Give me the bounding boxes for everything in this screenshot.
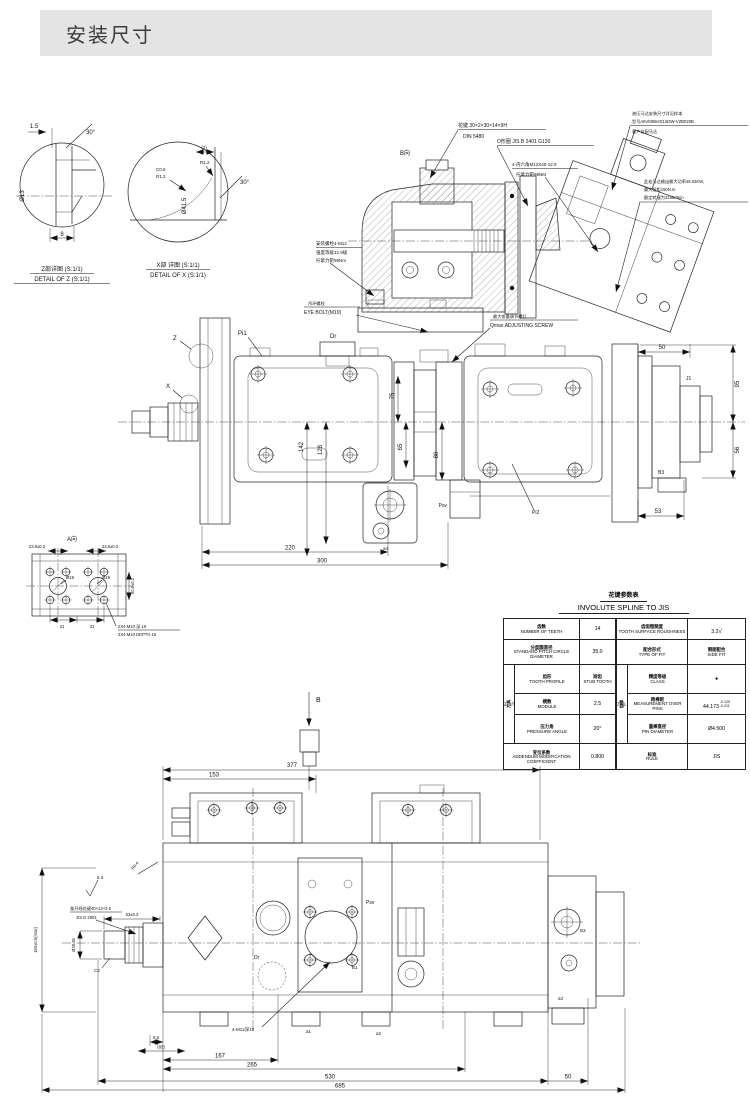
detail-x-title-cn: X部 详图 (S:1/1) — [156, 261, 199, 269]
table-group-cutter: 刀具 CUTTER — [504, 665, 515, 744]
dim-128: 128 — [318, 444, 324, 455]
dim-31-right: 31 — [90, 624, 95, 629]
dim-80: 80 — [434, 451, 440, 458]
motor-note-line2: 型号A6VM55HD1/63W-VZB020B — [632, 118, 694, 125]
qmax-note-en: Qmax.ADJUSTING SCREW — [490, 323, 553, 329]
technical-drawing-canvas: 1.5 30° 8 Ø13 Z部详图 (S:1/1) DETAIL OF Z (… — [0, 0, 750, 1118]
detail-z-dim-depth: 8 — [60, 232, 64, 238]
table-cell-name: 模数MODULE — [515, 694, 580, 715]
bottom-spline-note-line2: JIS D 2001 — [76, 915, 97, 920]
dim-153: 153 — [209, 773, 220, 779]
table-cell-name: 齿形TOOTH PROFILE — [515, 665, 580, 694]
port-b3-label: B3 — [658, 470, 664, 476]
bottom-port-dr-label: Dr — [254, 955, 260, 961]
dim-31-left: 31 — [60, 624, 65, 629]
dim-53: 53 — [655, 509, 662, 515]
bottom-port-a2-label: a2 — [376, 1031, 382, 1036]
spline-table-title: 花键参数表 INVOLUTE SPLINE TO JIS — [503, 583, 744, 614]
dim-265: 265 — [247, 1063, 258, 1069]
table-cell-name: 齿面粗糙度TOOTH SURFACE ROUGHNESS — [617, 619, 688, 640]
table-cell-value: JIS — [688, 744, 746, 770]
table-cell-name: 精度等级CLASS — [628, 665, 688, 694]
bottom-port-a1-label: a1 — [306, 1029, 312, 1034]
fillet-note: R0.4 — [130, 860, 140, 871]
detail-x-dim-r-top: R1.2 — [200, 160, 210, 165]
chamfer-note: C2 — [94, 968, 100, 973]
dim-142: 142 — [299, 441, 305, 452]
dim-8-5: 8.5 — [153, 1035, 159, 1040]
table-cell-value: 44.173-0.125-0.211 — [688, 694, 746, 715]
detail-z-title-en: DETAIL OF Z (S:1/1) — [34, 277, 89, 283]
dim-pitch-left: 23.8±0.2 — [29, 544, 46, 549]
dim-pitch-right: 23.8±0.2 — [102, 544, 119, 549]
table-cell-name: 齿数NUMBER OF TEETH — [504, 619, 580, 640]
table-cell-name: 配合形式TYPE OF FIT — [617, 640, 688, 665]
dim-vertical: 50.8±0.2 — [130, 577, 135, 594]
mount-bolt-note-line1: 安装螺栓4-M12 — [316, 240, 347, 247]
dim-220: 220 — [285, 546, 296, 552]
spline-table: 花键参数表 INVOLUTE SPLINE TO JIS 齿数NUMBER OF… — [503, 583, 744, 770]
bottom-port-psv-label: Psv — [366, 900, 375, 906]
mount-bolt-note-line2: 强度等级12.9级 — [316, 249, 348, 256]
view-a-label: A向 — [67, 535, 77, 543]
detail-x-dim-angle: 30° — [240, 180, 250, 186]
dim-300: 300 — [317, 559, 328, 565]
thread-note-cn: 2X4-M10 深 16 — [118, 623, 147, 630]
dim-167: 167 — [215, 1054, 226, 1060]
detail-x-dim-groove: (2) — [201, 145, 207, 150]
dim-shaft-diameter: Ø39.36 — [71, 937, 76, 951]
bottom-bolt-note: 4-M12深18 — [232, 1026, 255, 1033]
eye-bolt-note-en: EYE BOLT(M10) — [304, 310, 341, 316]
detail-z-dim-bore: Ø13 — [20, 190, 26, 202]
table-cell-value: 2.5 — [580, 694, 616, 715]
socket-bolt-note-line2: 拧紧力矩98NM — [516, 171, 546, 178]
table-group-tooth-thickness: 齿厚 TOOTH THICKNESS — [617, 665, 628, 744]
qmax-note-cn: 最大排量调节螺钉 — [493, 313, 527, 320]
table-cell-name: 压力角PRESSURE ANGLE — [515, 715, 580, 744]
dim-685: 685 — [335, 1084, 346, 1090]
table-cell-value: Ø4.500 — [688, 715, 746, 744]
port-dr-label: Dr — [330, 334, 336, 340]
spline-note-line1: 花键 30×2×30×14×9H — [458, 122, 507, 129]
dim-56: 56 — [735, 446, 741, 453]
power-note-line1: 此处马达输出最大功率46.03KW, — [644, 178, 704, 185]
power-note-line2: 最大扭矩150N.m — [644, 186, 676, 193]
power-note-line3: 额定转速为2150r/min — [644, 194, 684, 201]
detail-x-title-en: DETAIL OF X (S:1/1) — [150, 273, 206, 279]
dim-50-bottom: 50 — [565, 1075, 572, 1081]
bottom-port-a3-label: a3 — [558, 996, 564, 1001]
detail-z-dim-angle: 30° — [86, 130, 96, 136]
dim-85: (85) — [157, 1045, 165, 1050]
spline-table-right: 齿面粗糙度TOOTH SURFACE ROUGHNESS 3.2√ 配合形式TY… — [616, 618, 746, 770]
table-cell-name: 跨棒距MEASUREMENT OVER PINS — [628, 694, 688, 715]
detail-z-title-cn: Z部详图 (S:1/1) — [41, 265, 82, 273]
table-cell-value: 短齿STUB TOOTH — [580, 665, 616, 694]
dim-95: 95 — [735, 380, 741, 387]
detail-x-view: (2) R1.2 C0.5 R1.2 30° Ø41.5 X部 详图 (S:1/… — [128, 142, 250, 279]
table-cell-name: 标准RULE — [617, 744, 688, 770]
table-cell-value: 14 — [580, 619, 616, 640]
port-j1-label: J1 — [686, 376, 692, 382]
spline-table-title-cn: 花键参数表 — [600, 593, 646, 602]
detail-z-dim-width: 1.5 — [30, 124, 39, 130]
dim-65: 65 — [398, 443, 404, 450]
callout-z-label: Z — [173, 336, 177, 342]
table-cell-value: 3.2√ — [688, 619, 746, 640]
thread-note-en: 2X4-M10 DEPTH 16 — [118, 632, 157, 637]
table-cell-value: 0.800 — [580, 744, 616, 770]
oring-note: O形圈 JIS B 2401 G130 — [497, 138, 551, 145]
hydraulic-motor-outline — [529, 114, 731, 333]
table-cell-value: ● — [688, 665, 746, 694]
port-a4-label: a4 — [383, 546, 389, 551]
spline-table-left: 齿数NUMBER OF TEETH 14 分度圆直径STANDARD PITCH… — [503, 618, 616, 770]
callout-x-label: X — [166, 384, 170, 390]
socket-bolt-note-line1: 4-内六角M12X40-12.9 — [512, 161, 557, 168]
dim-spline-length: 53±0.3 — [126, 912, 139, 917]
detail-x-dim-r-bottom: R1.2 — [156, 174, 166, 179]
eye-bolt-note-cn: 吊环螺栓 — [308, 300, 326, 307]
dim-75: 75 — [390, 392, 396, 399]
motor-note-line3: 客户自配马达 — [632, 128, 658, 135]
bottom-spline-note-line1: 渐开线花键40×14×2.5 — [70, 905, 112, 912]
table-cell-name: 分度圆直径STANDARD PITCH CIRCLE DIAMETER — [504, 640, 580, 665]
mount-bolt-note-line3: 拧紧力矩98Nm — [316, 257, 346, 264]
view-a-port-pattern: A向 23.8±0.2 23.8±0.2 Ø19 Ø19 50.8±0.2 31… — [26, 535, 180, 637]
table-cell-name: 量棒直径PIN DIAMETER — [628, 715, 688, 744]
detail-x-dim-chamfer: C0.5 — [156, 167, 166, 172]
port-psv-label: Psv — [439, 503, 448, 509]
roughness-symbol: √ — [718, 629, 721, 635]
dim-50-top: 50 — [659, 345, 666, 351]
port-pi2-label: Pi2 — [532, 510, 539, 516]
table-cell-value: 侧面配合SIDE FIT — [688, 640, 746, 665]
view-b-label: B向 — [400, 149, 410, 157]
dim-530: 530 — [325, 1075, 336, 1081]
dim-height: 160±0.5(max) — [33, 926, 38, 952]
table-cell-name: 变位系数ADDENDUM MODIFICATION COEFFICIENT — [504, 744, 580, 770]
spline-table-title-en: INVOLUTE SPLINE TO JIS — [559, 603, 689, 614]
table-cell-value: 20° — [580, 715, 616, 744]
section-view: B向 花键 30×2×30×14×9H DIN 5480 O形圈 JIS B 2… — [304, 110, 748, 362]
view-b-direction-label: B — [316, 697, 321, 704]
side-view: Z X Dr Pi1 B3 J1 a4 Psv Pi2 1 — [118, 318, 745, 569]
spline-note-line2: DIN 5480 — [463, 134, 484, 140]
dim-port-right: Ø19 — [102, 575, 111, 580]
surface-roughness-value: 6.3 — [97, 875, 104, 880]
port-pi1-label: Pi1 — [238, 331, 247, 337]
motor-note-line1: 液压马达安装尺寸详见样本 — [632, 110, 683, 117]
bottom-port-b3-label: B3 — [580, 928, 586, 933]
dim-port-left: Ø19 — [66, 575, 75, 580]
detail-z-view: 1.5 30° 8 Ø13 Z部详图 (S:1/1) DETAIL OF Z (… — [14, 124, 112, 284]
table-cell-value: 35.0 — [580, 640, 616, 665]
bottom-port-b1-label: B1 — [352, 965, 358, 970]
detail-x-dim-bore: Ø41.5 — [182, 197, 188, 214]
dim-377: 377 — [287, 763, 298, 769]
